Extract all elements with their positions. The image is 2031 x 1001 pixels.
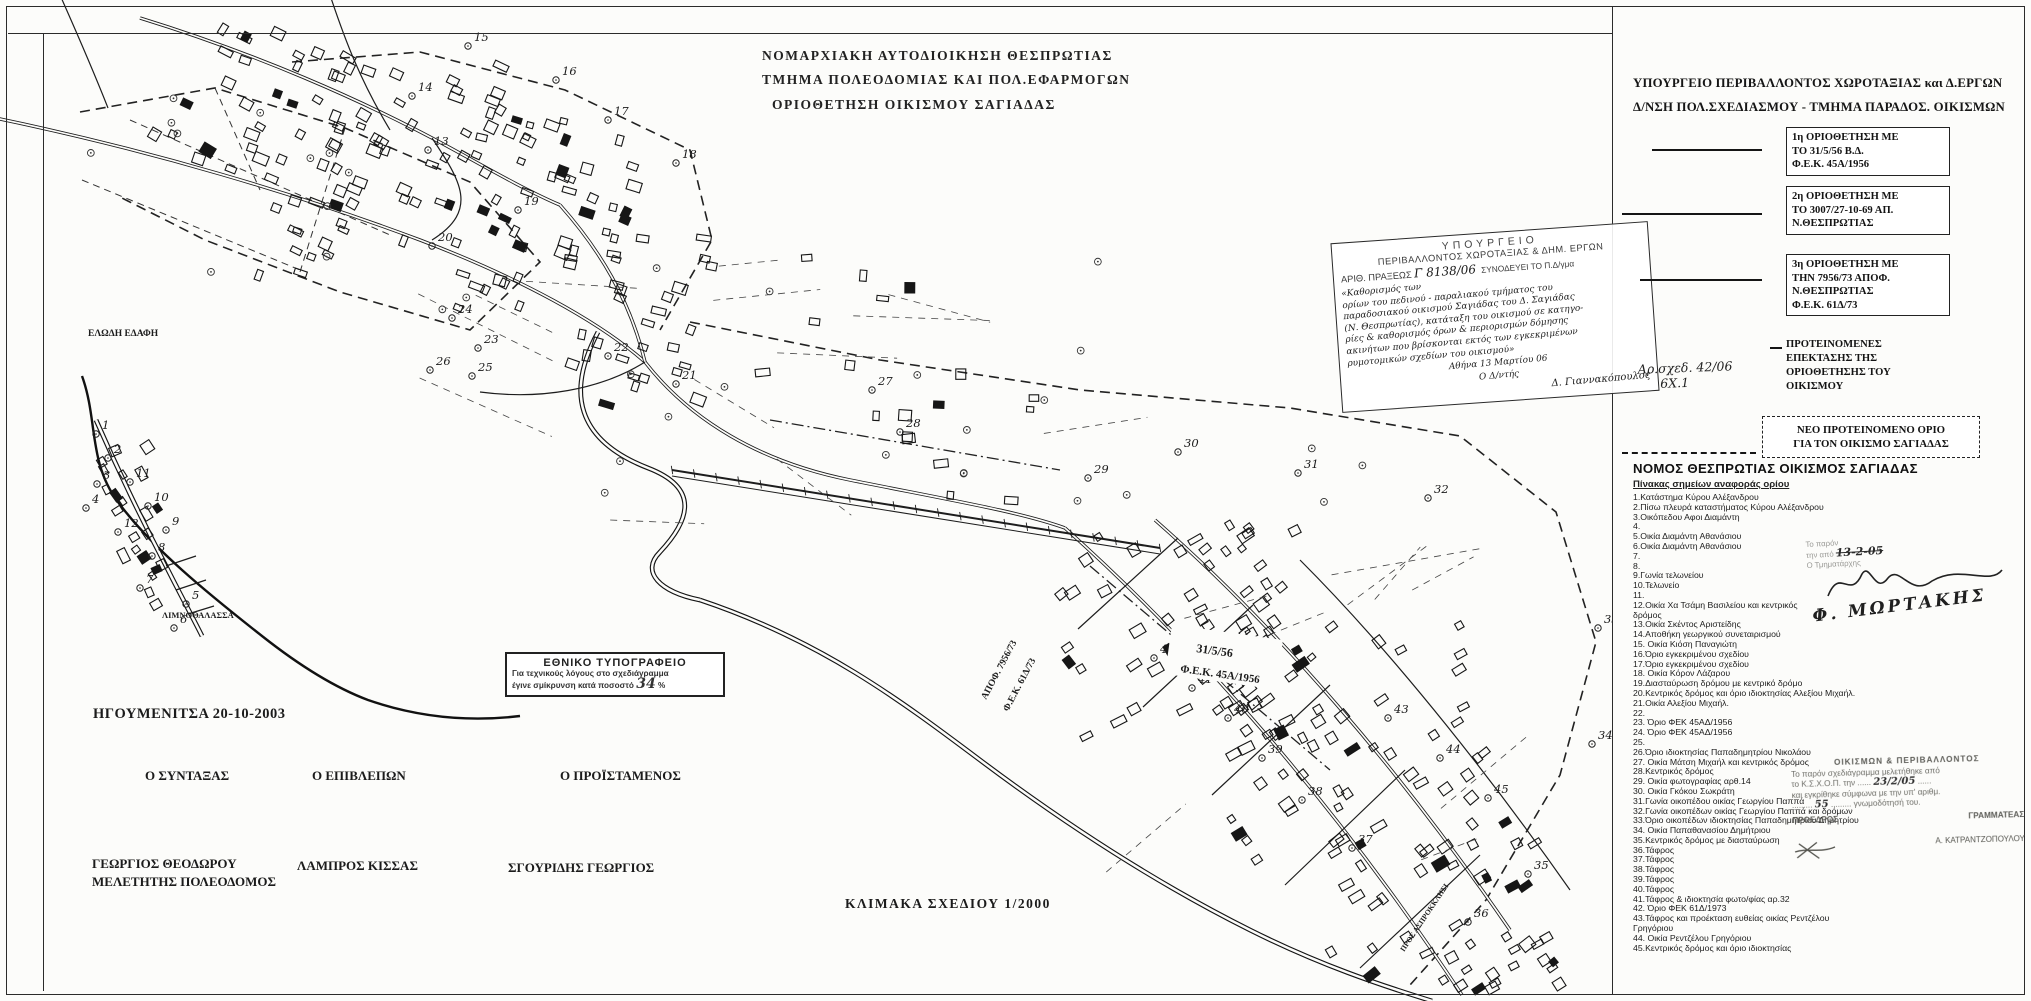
building xyxy=(641,319,654,328)
building xyxy=(168,130,177,139)
committee-secretary-name: Α. ΚΑΤΡΑΝΤΖΟΠΟΥΛΟΥ xyxy=(1935,834,2025,858)
building xyxy=(271,203,282,214)
building xyxy=(1501,932,1511,942)
boundary-point-number: 11 xyxy=(136,466,151,480)
building xyxy=(410,197,422,208)
building xyxy=(221,76,236,90)
building xyxy=(560,134,570,146)
building xyxy=(244,128,260,142)
building xyxy=(1370,819,1387,833)
building xyxy=(468,281,484,292)
building xyxy=(544,119,560,132)
building xyxy=(1247,696,1262,710)
committee-date: 23/2/05 xyxy=(1873,776,1915,788)
building xyxy=(288,225,304,237)
building xyxy=(1461,965,1471,974)
legend-symbol-1st-boundary xyxy=(1652,149,1762,151)
boundary-point-number: 44 xyxy=(1445,742,1461,756)
boundary-point-number: 4 xyxy=(91,492,99,506)
building xyxy=(517,157,526,165)
building xyxy=(293,50,305,60)
boundary-point-number: 20 xyxy=(437,230,453,244)
building xyxy=(562,186,576,195)
building xyxy=(1094,533,1103,542)
building xyxy=(451,238,461,248)
building xyxy=(755,368,770,377)
building xyxy=(1339,878,1355,891)
map-title-line3: ΟΡΙΟΘΕΤΗΣΗ ΟΙΚΙΣΜΟΥ ΣΑΓΙΑΔΑΣ xyxy=(772,97,1056,113)
building xyxy=(845,360,855,370)
building xyxy=(1508,961,1519,971)
map-labels: ΕΛΩΔΗ ΕΔΑΦΗΛΙΜΝΟΘΑΛΑΣΣΑ31/5/56Φ.Ε.Κ. 45Α… xyxy=(88,329,1450,953)
legend-symbol-proposed-extension xyxy=(1770,347,1782,349)
building xyxy=(934,459,949,468)
building xyxy=(902,433,916,444)
building xyxy=(631,381,640,392)
panel-header-line2: Δ/ΝΣΗ ΠΟΛ.ΣΧΕΔΙΑΣΜΟΥ - ΤΜΗΜΑ ΠΑΡΑΔΟΣ. ΟΙ… xyxy=(1633,100,2013,115)
building xyxy=(276,154,287,165)
building xyxy=(1261,578,1272,590)
building xyxy=(1111,715,1128,728)
building xyxy=(140,440,155,455)
building xyxy=(294,268,308,277)
boundary-point-number: 9 xyxy=(172,514,179,528)
building xyxy=(1254,777,1268,791)
panel-header-line1: ΥΠΟΥΡΓΕΙΟ ΠΕΡΙΒΑΛΛΟΝΤΟΣ ΧΩΡΟΤΑΞΙΑΣ και Δ… xyxy=(1633,76,2013,91)
building xyxy=(1344,743,1360,756)
building xyxy=(264,173,278,184)
building xyxy=(1328,847,1341,858)
building xyxy=(344,62,356,75)
building xyxy=(1240,724,1252,736)
boundary-point-number: 25 xyxy=(477,360,493,374)
boundary-point-number: 40 xyxy=(1233,702,1249,716)
building xyxy=(1537,953,1551,966)
boundary-point-number: 26 xyxy=(435,354,451,368)
building xyxy=(1307,740,1319,753)
building xyxy=(486,107,496,119)
building xyxy=(672,368,682,377)
building xyxy=(1472,753,1482,764)
building xyxy=(1061,642,1073,653)
building xyxy=(239,97,254,111)
boundary-point-number: 21 xyxy=(681,368,697,382)
building xyxy=(609,203,618,212)
building xyxy=(1127,703,1141,716)
building xyxy=(667,343,679,353)
legend-entry-1: 1η ΟΡΙΟΘΕΤΗΣΗ ΜΕΤΟ 31/5/56 Β.Δ.Φ.Ε.Κ. 45… xyxy=(1786,127,1950,176)
building xyxy=(615,135,624,147)
survey-marks xyxy=(87,95,1526,872)
boundary-point-row: 6.Οικία Διαμάντη Αθανάσιου xyxy=(1633,542,1963,552)
boundary-point-number: 2 xyxy=(113,442,121,456)
building xyxy=(1325,621,1337,633)
building xyxy=(636,234,649,243)
building xyxy=(499,278,510,289)
building xyxy=(290,246,302,256)
building xyxy=(626,161,638,171)
print-stamp-title: ΕΘΝΙΚΟ ΤΥΠΟΓΡΑΦΕΙΟ xyxy=(512,657,718,669)
building xyxy=(587,193,599,204)
building xyxy=(1472,983,1486,995)
building xyxy=(1285,670,1298,682)
building xyxy=(1431,855,1449,872)
building xyxy=(331,163,342,175)
boundary-point-row: 43.Τάφρος και προέκταση ευθείας οικίας Ρ… xyxy=(1633,914,1963,934)
points-table-title: ΝΟΜΟΣ ΘΕΣΠΡΩΤΙΑΣ ΟΙΚΙΣΜΟΣ ΣΑΓΙΑΔΑΣ xyxy=(1633,461,1918,476)
place-and-date: ΗΓΟΥΜΕΝΙΤΣΑ 20-10-2003 xyxy=(93,706,285,723)
building xyxy=(1454,649,1467,660)
boundary-point-number: 36 xyxy=(1474,906,1489,920)
building xyxy=(1499,817,1511,828)
legend-entry-4: ΠΡΟΤΕΙΝΟΜΕΝΕΣΕΠΕΚΤΑΣΗΣ ΤΗΣΟΡΙΟΘΕΤΗΣΗΣ ΤΟ… xyxy=(1786,338,1956,394)
building xyxy=(1395,645,1406,655)
building xyxy=(690,392,707,407)
boundary-point-number: 31 xyxy=(1304,457,1319,471)
building xyxy=(1438,782,1453,796)
building xyxy=(1465,939,1475,949)
building xyxy=(1461,768,1475,782)
building xyxy=(1540,932,1553,944)
building xyxy=(639,373,650,383)
boundary-point-number: 10 xyxy=(154,490,169,504)
building-clusters xyxy=(96,23,1566,995)
boundary-point-number: 27 xyxy=(877,374,893,388)
building xyxy=(560,118,568,125)
building xyxy=(1348,890,1364,904)
building xyxy=(1384,748,1396,761)
building xyxy=(131,545,140,554)
drawing-number: Αρ.σχεδ. 42/06 6Χ.1 xyxy=(1638,358,1734,391)
building xyxy=(1278,769,1288,779)
building xyxy=(117,548,131,564)
building xyxy=(1278,796,1295,812)
boundary-point-number: 23 xyxy=(483,332,499,346)
building xyxy=(1298,732,1308,743)
building xyxy=(905,283,915,293)
building xyxy=(499,214,512,224)
boundary-point-number: 16 xyxy=(562,64,577,78)
building xyxy=(356,122,365,130)
boundary-point-number: 19 xyxy=(524,194,539,208)
building xyxy=(1240,586,1253,598)
building xyxy=(491,87,506,100)
building xyxy=(129,532,140,543)
building xyxy=(1238,741,1255,756)
map-title-line2: ΤΜΗΜΑ ΠΟΛΕΟΔΟΜΙΑΣ ΚΑΙ ΠΟΛ.ΕΦΑΡΜΟΓΩΝ xyxy=(762,72,1131,88)
building xyxy=(254,269,263,281)
role-epivlepon: Ο ΕΠΙΒΛΕΠΩΝ xyxy=(312,768,406,784)
building xyxy=(1428,729,1439,740)
boundary-point-number: 35 xyxy=(1534,858,1549,872)
building xyxy=(616,354,629,363)
building xyxy=(477,205,489,216)
building xyxy=(696,234,711,242)
role-proistamenos: Ο ΠΡΟΪΣΤΑΜΕΝΟΣ xyxy=(560,768,681,784)
boundary-point-number: 14 xyxy=(418,80,433,94)
boundary-point-number: 33 xyxy=(1604,612,1612,626)
boundary-point-number: 5 xyxy=(192,588,199,602)
building xyxy=(394,98,405,107)
map-title-line1: ΝΟΜΑΡΧΙΑΚΗ ΑΥΤΟΔΙΟΙΚΗΣΗ ΘΕΣΠΡΩΤΙΑΣ xyxy=(762,48,1113,64)
boundary-point-row: 3.Οικόπεδου Αφοι Διαμάντη xyxy=(1633,513,1963,523)
building xyxy=(426,160,439,170)
building xyxy=(565,358,579,371)
building xyxy=(1080,731,1093,742)
building xyxy=(877,295,889,301)
building xyxy=(1311,714,1326,728)
building xyxy=(361,65,376,77)
building xyxy=(1129,623,1146,639)
committee-role-president: ΠΡΟΕΔΡΟΣ xyxy=(1792,814,1838,826)
committee-opinion-number: 55 xyxy=(1815,799,1829,810)
scale-label: ΚΛΙΜΑΚΑ ΣΧΕΔΙΟΥ 1/2000 xyxy=(845,896,1051,912)
building xyxy=(558,236,573,249)
boundary-point-number: 22 xyxy=(613,340,629,354)
building xyxy=(312,95,323,105)
boundary-point-number: 29 xyxy=(1093,462,1109,476)
building xyxy=(491,194,501,205)
building xyxy=(1227,815,1236,824)
building xyxy=(956,369,966,379)
building xyxy=(1004,496,1018,504)
building xyxy=(102,485,111,495)
president-signature-scribble xyxy=(1793,839,1840,862)
building xyxy=(873,411,880,421)
building xyxy=(1451,717,1463,728)
name-sgouridis: ΣΓΟΥΡΙΔΗΣ ΓΕΩΡΓΙΟΣ xyxy=(508,860,654,876)
building xyxy=(1547,963,1558,973)
building xyxy=(515,301,524,312)
building xyxy=(1238,544,1247,553)
building xyxy=(1519,936,1536,953)
building xyxy=(318,237,332,251)
building xyxy=(1307,653,1316,661)
building xyxy=(1485,967,1499,981)
boundary-point-row: 45.Κεντρικός δρόμος και όριο ιδιοκτησίας xyxy=(1633,944,1963,954)
boundary-point-number: 24 xyxy=(457,302,473,316)
legend-entry-3: 3η ΟΡΙΟΘΕΤΗΣΗ ΜΕΤΗΝ 7956/73 ΑΠΟΦ.Ν.ΘΕΣΠΡ… xyxy=(1786,254,1950,316)
building xyxy=(252,151,269,166)
boundary-point-number: 32 xyxy=(1434,482,1449,496)
building xyxy=(356,107,372,122)
boundary-point-row: 38.Τάφρος xyxy=(1633,865,1963,875)
building xyxy=(489,225,499,235)
building xyxy=(1505,880,1520,893)
building xyxy=(1374,694,1388,706)
boundary-point-number: 18 xyxy=(682,147,697,161)
building xyxy=(295,129,305,140)
building xyxy=(1225,520,1235,531)
building xyxy=(435,198,447,207)
building xyxy=(199,142,216,158)
building xyxy=(1325,946,1336,958)
building xyxy=(144,587,154,598)
building xyxy=(1368,898,1383,911)
building xyxy=(1414,864,1427,878)
building xyxy=(579,207,595,219)
building xyxy=(493,60,509,72)
boundary-point-number: 43 xyxy=(1393,702,1409,716)
boundary-point-number: 3 xyxy=(103,468,110,482)
print-stamp-line1: Για τεχνικούς λόγους στο σχεδιάγραμμα xyxy=(512,669,718,679)
building xyxy=(273,89,283,99)
canal xyxy=(671,466,1160,554)
boundary-point-number: 1 xyxy=(102,418,109,432)
boundary-point-number: 13 xyxy=(434,134,449,148)
building xyxy=(651,306,667,316)
boundary-point-row: 39.Τάφρος xyxy=(1633,875,1963,885)
building xyxy=(1184,588,1198,601)
building xyxy=(1482,873,1491,883)
building xyxy=(389,68,403,81)
boundary-point-number: 30 xyxy=(1184,436,1199,450)
building xyxy=(1325,731,1338,744)
building xyxy=(484,120,499,135)
building xyxy=(1552,977,1566,991)
building xyxy=(255,122,266,132)
building xyxy=(661,291,673,302)
building xyxy=(150,598,163,610)
building xyxy=(1313,704,1324,715)
building xyxy=(1029,395,1038,402)
building xyxy=(1445,951,1459,965)
boundary-point-number: 45 xyxy=(1493,782,1509,796)
building xyxy=(526,122,534,129)
building xyxy=(336,218,347,228)
map-label: ΠΡΟΣ ΑΣΠΡΟΚΚΛΗΣΙ xyxy=(1398,882,1450,953)
building xyxy=(1221,546,1231,557)
building xyxy=(1457,702,1469,712)
building xyxy=(1439,975,1449,985)
building xyxy=(456,270,470,279)
boundary-point-number: 7 xyxy=(146,572,154,586)
building xyxy=(1254,560,1266,572)
building xyxy=(686,324,696,335)
new-boundary-legend-box: ΝΕΟ ΠΡΟΤΕΙΝΟΜΕΝΟ ΟΡΙΟ ΓΙΑ ΤΟΝ ΟΙΚΙΣΜΟ ΣΑ… xyxy=(1762,416,1980,458)
building xyxy=(1177,704,1193,716)
building xyxy=(809,318,820,326)
building xyxy=(180,98,193,109)
boundary-point-number: 38 xyxy=(1308,784,1323,798)
boundary-point-number: 37 xyxy=(1358,832,1373,846)
printing-office-stamp: ΕΘΝΙΚΟ ΤΥΠΟΓΡΑΦΕΙΟ Για τεχνικούς λόγους … xyxy=(505,652,725,697)
points-table-subtitle: Πίνακας σημείων αναφοράς ορίου xyxy=(1633,479,1789,490)
building xyxy=(1199,543,1211,555)
role-syntaxas: Ο ΣΥΝΤΑΞΑΣ xyxy=(145,768,229,784)
building xyxy=(1079,553,1094,568)
building xyxy=(509,225,520,237)
legend-symbol-3rd-boundary xyxy=(1640,279,1762,281)
name-kissas: ΛΑΜΠΡΟΣ ΚΙΣΣΑΣ xyxy=(297,858,418,874)
building xyxy=(511,116,522,124)
building xyxy=(446,75,459,87)
building xyxy=(1449,919,1463,931)
building xyxy=(513,240,527,252)
legend-entry-2: 2η ΟΡΙΟΘΕΤΗΣΗ ΜΕΤΟ 3007/27-10-69 ΑΠ.Ν.ΘΕ… xyxy=(1786,186,1950,235)
building xyxy=(503,124,518,139)
building xyxy=(599,399,615,409)
legend-symbol-new-boundary xyxy=(1622,452,1756,454)
building xyxy=(1413,777,1428,789)
boundary-point-number: 39 xyxy=(1268,742,1283,756)
building xyxy=(1333,785,1344,797)
map-label: ΕΛΩΔΗ ΕΔΑΦΗ xyxy=(88,329,159,339)
building xyxy=(1127,658,1142,672)
building xyxy=(1285,805,1298,816)
building xyxy=(346,183,362,196)
building xyxy=(1455,621,1465,631)
map-drawing: .rd{stroke:#1b1b1b;stroke-width:3.4;fill… xyxy=(0,0,1612,1001)
building xyxy=(1452,663,1466,676)
building xyxy=(329,110,341,123)
building xyxy=(153,503,163,513)
building xyxy=(287,99,298,108)
boundary-point-number: 34 xyxy=(1598,728,1612,742)
building xyxy=(317,159,329,172)
reduction-percentage: 34 xyxy=(636,676,655,692)
building xyxy=(311,47,325,60)
building xyxy=(1275,581,1287,593)
name-theodorou: ΓΕΩΡΓΙΟΣ ΘΕΟΔΩΡΟΥ xyxy=(92,856,237,872)
legend-symbol-2nd-boundary xyxy=(1622,213,1762,215)
building xyxy=(333,185,347,198)
building xyxy=(859,270,867,281)
building xyxy=(580,162,594,175)
building xyxy=(307,252,316,261)
building xyxy=(1251,854,1262,865)
building xyxy=(1213,705,1224,715)
boundary-point-row: 24. Όριο ΦΕΚ 45ΑΔ/1956 xyxy=(1633,728,1963,738)
map-label: ΛΙΜΝΟΘΑΛΑΣΣΑ xyxy=(162,610,235,620)
boundary-point-number: 17 xyxy=(614,104,629,118)
building xyxy=(628,373,640,381)
building xyxy=(602,228,610,236)
building xyxy=(1466,818,1478,830)
building xyxy=(1188,534,1203,546)
building xyxy=(1026,406,1033,412)
boundary-point-number: 28 xyxy=(905,416,921,430)
building xyxy=(1288,525,1301,537)
building xyxy=(476,133,488,142)
roads xyxy=(0,0,1570,995)
map-frame-left xyxy=(43,33,44,991)
building xyxy=(1274,725,1288,739)
building xyxy=(626,179,642,193)
print-stamp-line2: έγινε σμίκρυνση κατά ποσοστό 34 % xyxy=(512,679,718,691)
building xyxy=(1334,803,1343,812)
building xyxy=(672,281,689,295)
building xyxy=(1097,585,1111,598)
boundary-point-row: 21.Οικία Αλεξίου Μιχαήλ. xyxy=(1633,699,1963,709)
building xyxy=(399,235,409,247)
building xyxy=(461,128,472,138)
ministry-approval-stamp: ΥΠΟΥΡΓΕΙΟ ΠΕΡΙΒΑΛΛΟΝΤΟΣ ΧΩΡΟΤΑΞΙΑΣ & ΔΗΜ… xyxy=(1330,221,1659,413)
boundary-point-number: 8 xyxy=(158,540,165,554)
panel-divider xyxy=(1612,6,1613,995)
building xyxy=(110,488,123,502)
map-frame-top xyxy=(8,33,1612,34)
building xyxy=(1403,767,1418,782)
building xyxy=(801,254,812,261)
building xyxy=(1236,615,1252,630)
scanned-map-sheet: .rd{stroke:#1b1b1b;stroke-width:3.4;fill… xyxy=(0,0,2031,1001)
building xyxy=(1076,664,1086,674)
committee-stamp: ΟΙΚΙΣΜΩΝ & ΠΕΡΙΒΑΛΛΟΝΤΟΣ Το παρόν σχεδιά… xyxy=(1791,753,2026,862)
building xyxy=(346,197,359,210)
building xyxy=(1194,604,1208,614)
building xyxy=(448,91,464,103)
